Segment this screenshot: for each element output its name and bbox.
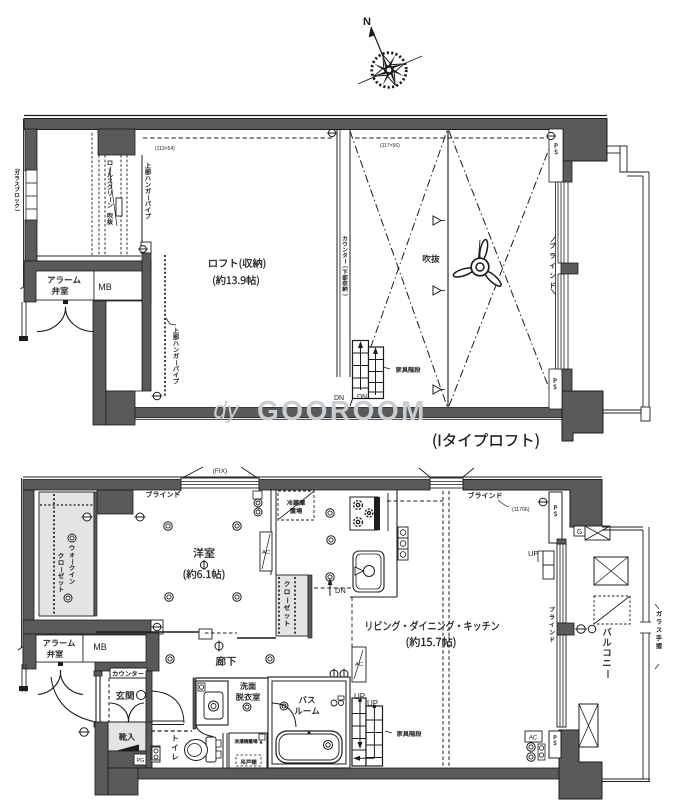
svg-text:(11706): (11706) — [512, 507, 530, 513]
svg-text:(113×54): (113×54) — [155, 146, 175, 152]
svg-text:AC: AC — [355, 662, 363, 668]
svg-text:AC: AC — [529, 736, 538, 742]
svg-text:MB: MB — [98, 282, 112, 292]
svg-text:N: N — [363, 16, 371, 28]
svg-text:(FIX): (FIX) — [213, 468, 227, 475]
svg-text:G: G — [577, 529, 582, 536]
svg-text:GOOROOM: GOOROOM — [257, 395, 427, 426]
svg-text:AC: AC — [262, 550, 270, 556]
svg-text:MB: MB — [93, 642, 107, 652]
svg-text:(117×56): (117×56) — [380, 143, 400, 149]
svg-text:dy: dy — [213, 397, 240, 424]
svg-text:DN: DN — [335, 586, 346, 595]
svg-text:UP: UP — [528, 549, 538, 558]
svg-text:PG: PG — [137, 758, 145, 764]
svg-text:UP: UP — [367, 699, 378, 708]
svg-text:UP: UP — [354, 692, 365, 701]
